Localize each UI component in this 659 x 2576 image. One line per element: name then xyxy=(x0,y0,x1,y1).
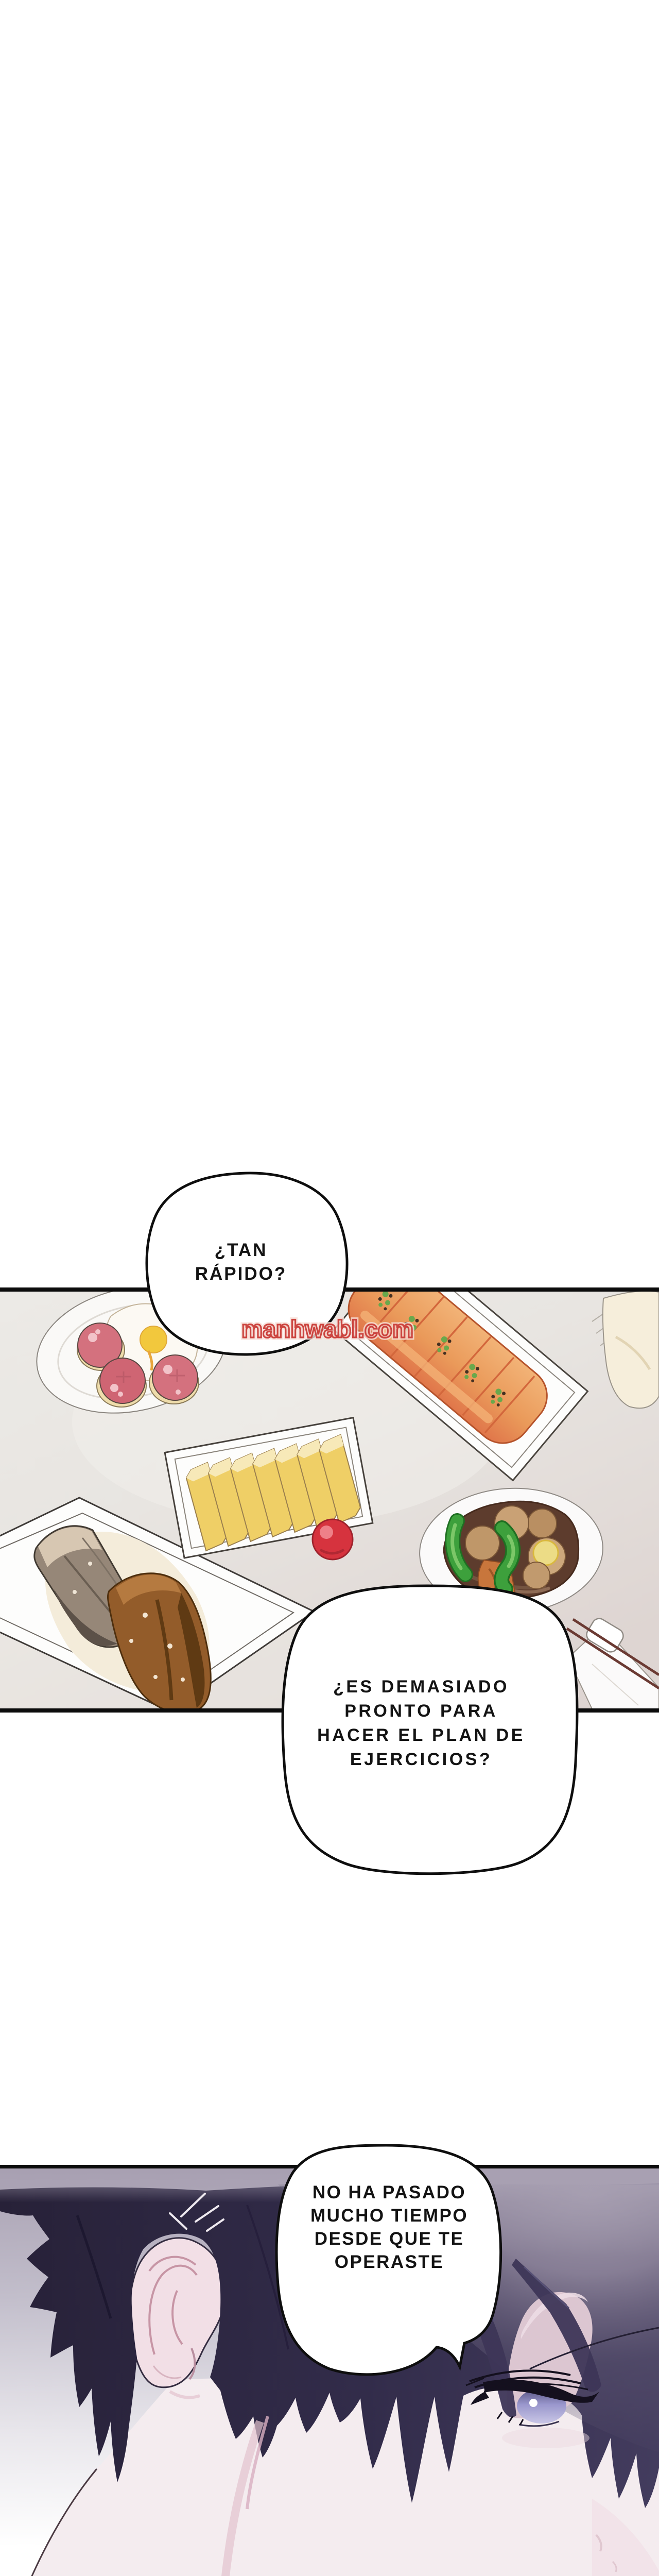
svg-text:NO HA PASADO: NO HA PASADO xyxy=(313,2182,466,2202)
svg-text:OPERASTE: OPERASTE xyxy=(335,2252,444,2272)
svg-text:HACER EL PLAN DE: HACER EL PLAN DE xyxy=(317,1725,525,1745)
svg-text:manhwabl.com: manhwabl.com xyxy=(241,1315,413,1343)
svg-text:PRONTO PARA: PRONTO PARA xyxy=(344,1701,498,1721)
svg-text:MUCHO TIEMPO: MUCHO TIEMPO xyxy=(310,2206,468,2226)
svg-text:DESDE QUE TE: DESDE QUE TE xyxy=(315,2229,464,2249)
svg-text:¿ES DEMASIADO: ¿ES DEMASIADO xyxy=(333,1677,509,1697)
svg-text:RÁPIDO?: RÁPIDO? xyxy=(195,1263,287,1284)
svg-text:¿TAN: ¿TAN xyxy=(215,1240,268,1260)
svg-text:EJERCICIOS?: EJERCICIOS? xyxy=(350,1750,492,1769)
